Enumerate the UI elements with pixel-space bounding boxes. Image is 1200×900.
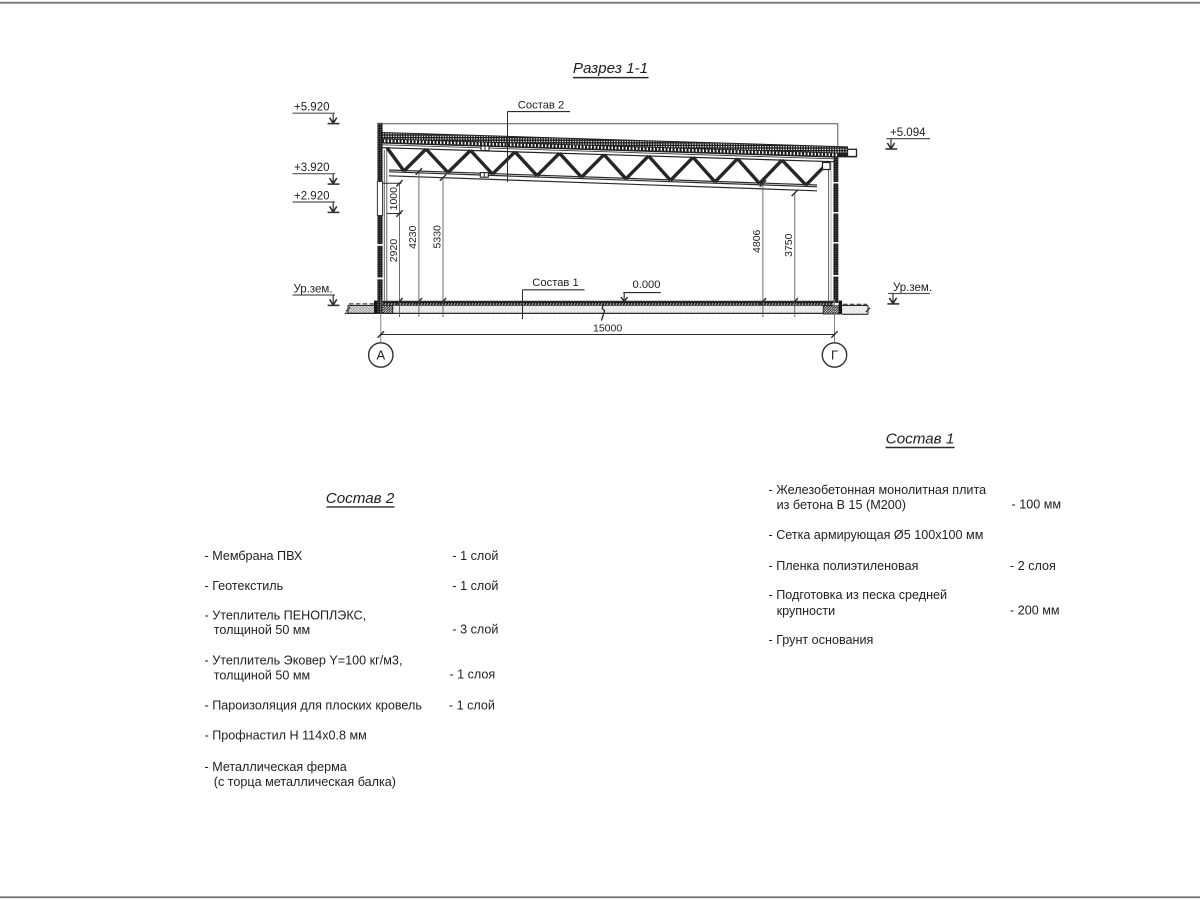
svg-text:4230: 4230 (407, 225, 419, 249)
svg-text:Г: Г (831, 348, 838, 363)
svg-text:15000: 15000 (593, 323, 622, 335)
svg-text:Состав 1: Состав 1 (886, 430, 955, 447)
svg-text:2920: 2920 (388, 239, 400, 263)
svg-text:Разрез 1-1: Разрез 1-1 (573, 60, 648, 77)
svg-text:Состав 2: Состав 2 (518, 100, 564, 112)
svg-text:- Железобетонная монолитная п: - Железобетонная монолитная плита (769, 483, 987, 497)
svg-text:- Пленка полиэтиленовая: - Пленка полиэтиленовая (769, 559, 919, 573)
svg-text:- Утеплитель Эковер Y=100 кг/м: - Утеплитель Эковер Y=100 кг/м3, (205, 654, 403, 668)
svg-text:- 1 слой: - 1 слой (452, 579, 498, 593)
svg-text:1000: 1000 (388, 187, 400, 211)
svg-text:Ур.зем.: Ур.зем. (293, 284, 332, 296)
svg-text:4806: 4806 (751, 229, 763, 253)
svg-text:- Мембрана ПВХ: - Мембрана ПВХ (205, 549, 303, 563)
svg-text:+3.920: +3.920 (294, 162, 330, 174)
svg-text:- Металлическая ферма: - Металлическая ферма (205, 760, 347, 774)
svg-text:крупности: крупности (777, 604, 836, 618)
svg-text:А: А (376, 348, 385, 363)
svg-text:- Утеплитель ПЕНОПЛЭКС,: - Утеплитель ПЕНОПЛЭКС, (205, 609, 367, 623)
svg-text:- 1 слой: - 1 слой (449, 699, 495, 713)
svg-text:- Геотекстиль: - Геотекстиль (205, 579, 284, 593)
svg-text:- Профнастил Н 114х0.8 мм: - Профнастил Н 114х0.8 мм (205, 729, 367, 743)
svg-text:Ур.зем.: Ур.зем. (893, 282, 932, 294)
svg-text:- 1 слоя: - 1 слоя (449, 668, 495, 682)
svg-text:- 2 слоя: - 2 слоя (1010, 559, 1056, 573)
svg-text:- Грунт основания: - Грунт основания (769, 633, 874, 647)
svg-text:3750: 3750 (783, 233, 795, 257)
svg-text:- Сетка армирующая Ø5 100х100: - Сетка армирующая Ø5 100х100 мм (769, 528, 984, 542)
svg-text:- 1 слой: - 1 слой (452, 549, 498, 563)
svg-text:5330: 5330 (431, 225, 443, 249)
svg-text:Состав 1: Состав 1 (532, 277, 578, 289)
svg-text:- Пароизоляция для плоских кро: - Пароизоляция для плоских кровель (205, 699, 423, 713)
svg-text:толщиной 50 мм: толщиной 50 мм (214, 669, 310, 683)
svg-text:толщиной 50 мм: толщиной 50 мм (214, 623, 310, 637)
svg-text:- Подготовка из песка средней: - Подготовка из песка средней (769, 588, 948, 602)
svg-text:+5.094: +5.094 (890, 127, 926, 139)
svg-text:- 100 мм: - 100 мм (1012, 498, 1062, 512)
svg-text:+5.920: +5.920 (294, 102, 330, 114)
svg-text:0.000: 0.000 (633, 279, 661, 291)
svg-text:из бетона В 15 (М200): из бетона В 15 (М200) (777, 498, 906, 512)
svg-text:Состав 2: Состав 2 (326, 490, 395, 507)
svg-text:+2.920: +2.920 (294, 191, 330, 203)
svg-text:- 3 слой: - 3 слой (452, 623, 498, 637)
svg-text:- 200 мм: - 200 мм (1010, 604, 1060, 618)
svg-text:(с торца металлическая балка): (с торца металлическая балка) (214, 775, 396, 789)
